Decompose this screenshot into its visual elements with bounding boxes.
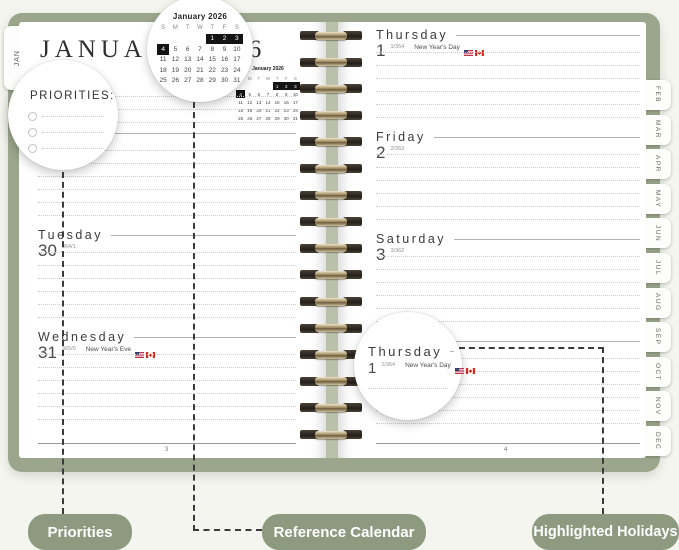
calendar-day: 25 (236, 114, 245, 122)
calendar-day: 30 (282, 114, 291, 122)
writing-line (376, 256, 640, 257)
magnifier-date: 1 (368, 359, 376, 378)
writing-line (38, 304, 296, 305)
connector-holidays-vertical (602, 347, 604, 514)
priority-row (28, 128, 104, 137)
date-line: 33/362 (376, 245, 404, 264)
calendar-day: 22 (273, 106, 282, 114)
magnifier-calendar-title: January 2026 (157, 12, 243, 21)
calendar-day: 28 (263, 114, 272, 122)
tab-aug: AUG (644, 288, 671, 318)
tab-apr: APR (644, 149, 671, 179)
calendar-day (182, 34, 194, 45)
writing-line (38, 189, 296, 190)
calendar-weekday: W (263, 74, 272, 82)
magnifier-calendar-grid: SMTWTFS123456789101112131415161718192021… (157, 23, 243, 86)
calendar-day: 26 (169, 76, 181, 87)
binding-loop (300, 269, 362, 280)
calendar-day: 31 (231, 76, 243, 87)
calendar-day: 24 (231, 65, 243, 76)
writing-line (38, 291, 296, 292)
calendar-day: 1 (273, 82, 282, 90)
writing-line (376, 193, 640, 194)
calendar-day: 26 (245, 114, 254, 122)
calendar-weekday: M (169, 23, 181, 34)
writing-line (38, 380, 296, 381)
calendar-day: 23 (282, 106, 291, 114)
binding-loop (300, 323, 362, 334)
writing-line (376, 295, 640, 296)
priority-row (28, 112, 104, 121)
calendar-day: 2 (282, 82, 291, 90)
writing-line (376, 308, 640, 309)
wire-coil (315, 298, 347, 306)
priorities-label: PRIORITIES: (30, 90, 115, 102)
writing-line (38, 252, 296, 253)
calendar-day: 13 (254, 98, 263, 106)
day-date: 1 (376, 41, 385, 60)
calendar-day: 18 (157, 65, 169, 76)
writing-line (376, 117, 640, 118)
day-rule (454, 239, 640, 240)
pill-priorities: Priorities (28, 514, 132, 550)
tab-oct: OCT (644, 357, 671, 387)
writing-line (376, 423, 640, 424)
binding-loop (300, 57, 362, 68)
magnifier-annotation: 1/364 (381, 362, 395, 368)
tab-label: MAR (654, 120, 661, 139)
writing-line (376, 167, 640, 168)
day-name: Friday (376, 130, 426, 144)
day-head: Saturday (376, 232, 640, 246)
calendar-day: 28 (194, 76, 206, 87)
calendar-day: 5 (169, 44, 181, 55)
tab-dec: DEC (644, 426, 671, 456)
calendar-weekday: T (206, 23, 218, 34)
calendar-day: 19 (169, 65, 181, 76)
wire-coil (315, 218, 347, 226)
wire-coil (315, 111, 347, 119)
day-head: Thursday (376, 28, 640, 42)
calendar-day: 30 (218, 76, 230, 87)
wire-coil (315, 85, 347, 93)
binding-loop (300, 349, 362, 360)
magnifier-day-head: Thursday (368, 344, 454, 358)
spiral-binding (300, 30, 362, 462)
calendar-day: 29 (273, 114, 282, 122)
right-page-number: 4 (504, 447, 507, 453)
calendar-day (169, 34, 181, 45)
binding-loop (300, 376, 362, 387)
tab-feb: FEB (644, 80, 671, 110)
wire-coil (315, 324, 347, 332)
calendar-day: 6 (182, 44, 194, 55)
reference-calendar-magnifier: January 2026 SMTWTFS12345678910111213141… (147, 0, 253, 102)
day-annotation: 3/362 (390, 248, 404, 254)
left-page-number: 3 (165, 447, 168, 453)
calendar-day: 20 (182, 65, 194, 76)
binding-loop (300, 83, 362, 94)
tab-mar: MAR (644, 115, 671, 145)
calendar-day: 14 (263, 98, 272, 106)
writing-line (38, 406, 296, 407)
date-line: 22/363 (376, 143, 404, 162)
calendar-day: 12 (245, 98, 254, 106)
calendar-day: 21 (263, 106, 272, 114)
day-rule (111, 235, 296, 236)
day-head: Friday (376, 130, 640, 144)
writing-line (376, 282, 640, 283)
calendar-day: 1 (206, 34, 218, 45)
day-rule (105, 133, 296, 134)
wire-coil (315, 32, 347, 40)
writing-line (376, 219, 640, 220)
day-rule (134, 337, 296, 338)
calendar-day: 19 (245, 106, 254, 114)
tab-label: SEP (654, 328, 661, 346)
calendar-day: 20 (254, 106, 263, 114)
calendar-day: 22 (206, 65, 218, 76)
day-row: Tuesday30364/1 (38, 228, 296, 328)
day-name: Wednesday (38, 330, 126, 344)
writing-line (38, 215, 296, 216)
day-name: Tuesday (38, 228, 103, 242)
date-line: 11/364New Year's Day (376, 41, 484, 61)
writing-line (376, 65, 640, 66)
us-flag-icon (455, 361, 464, 379)
calendar-weekday: T (254, 74, 263, 82)
day-date: 30 (38, 241, 57, 260)
day-head: Wednesday (38, 330, 296, 344)
writing-line (376, 206, 640, 207)
holiday-flags (455, 361, 475, 379)
wire-coil (315, 351, 347, 359)
day-row: Friday22/363 (376, 130, 640, 230)
calendar-day: 3 (291, 82, 300, 90)
magnifier-holiday: New Year's Day (405, 362, 451, 369)
calendar-day: 9 (218, 44, 230, 55)
tab-label: NOV (654, 397, 661, 416)
tab-may: MAY (644, 184, 671, 214)
calendar-day: 2 (218, 34, 230, 45)
magnifier-dotline (368, 388, 448, 389)
binding-loop (300, 136, 362, 147)
calendar-day: 14 (194, 55, 206, 66)
calendar-day: 16 (218, 55, 230, 66)
day-annotation: 1/364 (390, 44, 404, 50)
connector-reference-horizontal (193, 529, 262, 531)
calendar-weekday: F (218, 23, 230, 34)
calendar-weekday: T (273, 74, 282, 82)
day-row: Thursday11/364New Year's Day (376, 28, 640, 128)
tab-nov: NOV (644, 391, 671, 421)
calendar-weekday: S (231, 23, 243, 34)
calendar-day: 24 (291, 106, 300, 114)
calendar-day: 31 (291, 114, 300, 122)
priority-dotline (42, 148, 104, 149)
wire-coil (315, 404, 347, 412)
date-line: 31365/0New Year's Eve (38, 343, 155, 363)
canada-flag-icon (466, 361, 475, 379)
connector-holidays-horizontal (459, 347, 604, 349)
calendar-day (263, 82, 272, 90)
calendar-day: 13 (182, 55, 194, 66)
calendar-weekday: S (157, 23, 169, 34)
binding-loop (300, 110, 362, 121)
tab-label: MAY (654, 190, 661, 208)
binding-loop (300, 402, 362, 413)
calendar-day: 10 (231, 44, 243, 55)
calendar-day: 3 (231, 34, 243, 45)
calendar-weekday: T (182, 23, 194, 34)
connector-reference-vertical (193, 102, 195, 531)
day-date: 2 (376, 143, 385, 162)
calendar-weekday: F (282, 74, 291, 82)
tab-label: FEB (654, 86, 661, 103)
calendar-weekday: S (291, 74, 300, 82)
wire-coil (315, 244, 347, 252)
calendar-day: 25 (157, 76, 169, 87)
calendar-day: 17 (291, 98, 300, 106)
priority-row (28, 144, 104, 153)
day-name: Thursday (376, 28, 448, 42)
priority-dotline (42, 116, 104, 117)
tab-jun: JUN (644, 218, 671, 248)
calendar-weekday: W (194, 23, 206, 34)
binding-loop (300, 243, 362, 254)
pill-reference-calendar: Reference Calendar (262, 514, 426, 550)
calendar-day (254, 82, 263, 90)
tab-label: DEC (654, 432, 661, 450)
calendar-day: 17 (231, 55, 243, 66)
writing-line (376, 180, 640, 181)
calendar-day: 12 (169, 55, 181, 66)
writing-line (38, 393, 296, 394)
holiday-label: New Year's Eve (86, 346, 131, 353)
binding-loop (300, 429, 362, 440)
binding-loop (300, 190, 362, 201)
writing-line (376, 78, 640, 79)
priority-bullet-icon (28, 144, 37, 153)
day-date: 31 (38, 343, 57, 362)
writing-line (38, 176, 296, 177)
writing-line (38, 419, 296, 420)
writing-line (376, 91, 640, 92)
calendar-day (157, 34, 169, 45)
wire-coil (315, 377, 347, 385)
day-date: 3 (376, 245, 385, 264)
priority-dotline (42, 132, 104, 133)
wire-coil (315, 58, 347, 66)
tab-label: JUN (654, 225, 661, 242)
binding-loop (300, 163, 362, 174)
calendar-day: 11 (236, 98, 245, 106)
calendar-day: 18 (236, 106, 245, 114)
priority-bullet-icon (28, 128, 37, 137)
right-page-footer-rule (376, 443, 640, 444)
tab-label: OCT (654, 363, 661, 381)
calendar-day: 11 (157, 55, 169, 66)
calendar-day: 15 (206, 55, 218, 66)
writing-line (376, 104, 640, 105)
tab-jul: JUL (644, 253, 671, 283)
calendar-day: 4 (157, 44, 169, 55)
writing-line (38, 278, 296, 279)
calendar-day: 23 (218, 65, 230, 76)
writing-line (376, 52, 640, 53)
day-rule (434, 137, 640, 138)
writing-line (38, 317, 296, 318)
wire-coil (315, 431, 347, 439)
date-line: 30364/1 (38, 241, 76, 260)
holiday-label: New Year's Day (414, 44, 460, 51)
priority-bullet-icon (28, 112, 37, 121)
tab-sep: SEP (644, 322, 671, 352)
left-page-footer-rule (38, 443, 296, 444)
writing-line (38, 265, 296, 266)
writing-line (376, 154, 640, 155)
wire-coil (315, 138, 347, 146)
day-name: Saturday (376, 232, 446, 246)
day-head: Tuesday (38, 228, 296, 242)
calendar-day: 29 (206, 76, 218, 87)
calendar-day: 8 (206, 44, 218, 55)
pill-highlighted-holidays: Highlighted Holidays (532, 514, 679, 550)
binding-loop (300, 216, 362, 227)
day-row: Wednesday31365/0New Year's Eve (38, 330, 296, 430)
tab-label: APR (654, 155, 661, 173)
calendar-day: 7 (194, 44, 206, 55)
writing-line (38, 202, 296, 203)
connector-priorities (62, 172, 64, 514)
magnifier-date-line: 1 1/364 New Year's Day (368, 359, 475, 379)
calendar-day: 15 (273, 98, 282, 106)
magnifier-day-name: Thursday (368, 344, 442, 359)
writing-line (376, 269, 640, 270)
day-annotation: 2/363 (390, 146, 404, 152)
tab-label: JUL (654, 260, 661, 276)
calendar-day: 27 (254, 114, 263, 122)
wire-coil (315, 271, 347, 279)
writing-line (38, 354, 296, 355)
wire-coil (315, 165, 347, 173)
calendar-day: 16 (282, 98, 291, 106)
binding-loop (300, 296, 362, 307)
day-rule (456, 35, 640, 36)
holiday-magnifier: Thursday 1 1/364 New Year's Day (354, 312, 462, 420)
priorities-magnifier: PRIORITIES: (8, 60, 118, 170)
binding-loop (300, 30, 362, 41)
writing-line (38, 367, 296, 368)
calendar-day (194, 34, 206, 45)
calendar-day: 21 (194, 65, 206, 76)
magnifier-day-rule (450, 351, 454, 352)
tab-label: AUG (654, 293, 661, 312)
wire-coil (315, 191, 347, 199)
calendar-day: 27 (182, 76, 194, 87)
planner-product-image: JAN FEBMARAPRMAYJUNJULAUGSEPOCTNOVDEC JA… (0, 0, 679, 550)
